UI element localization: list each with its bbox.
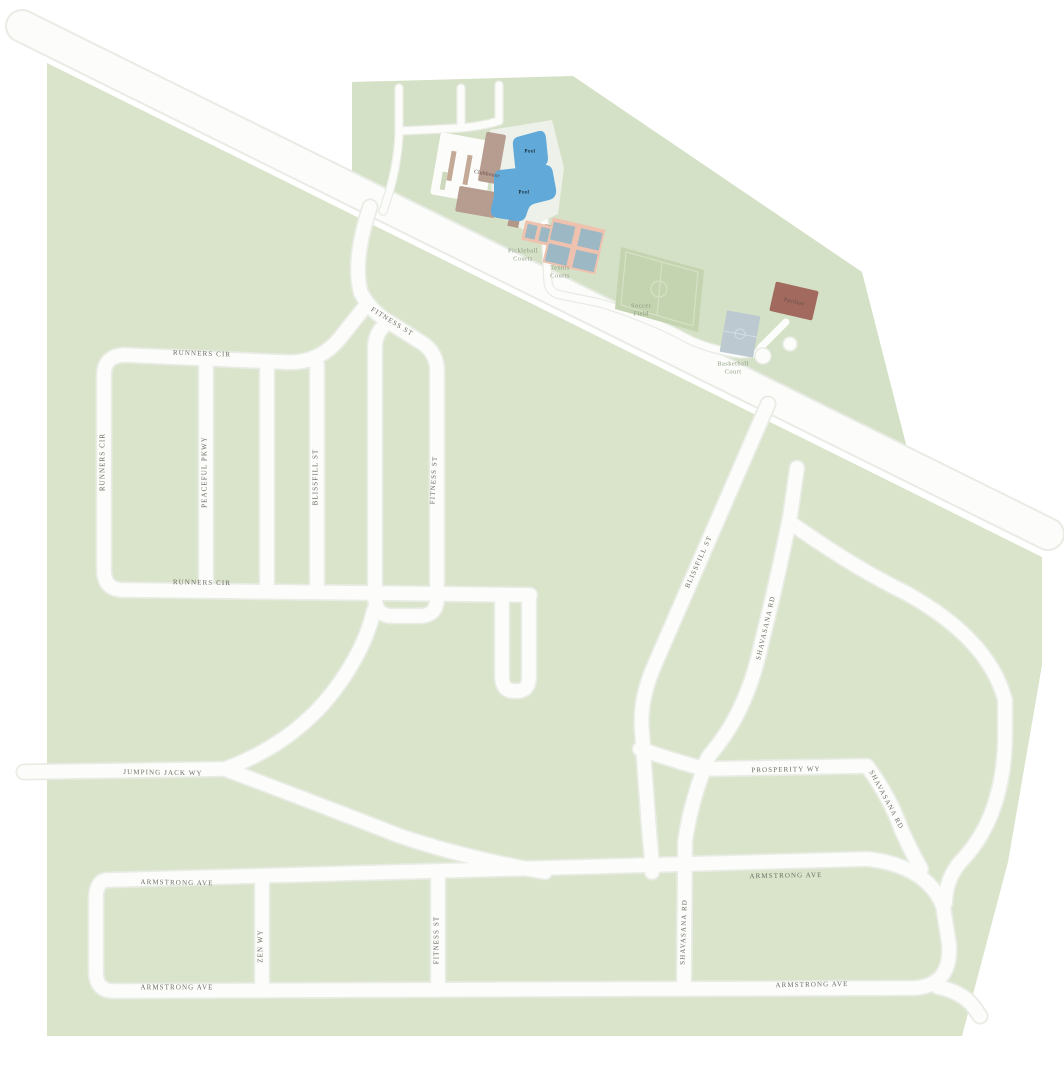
label-armstrong-ave-botleft: ARMSTRONG AVE <box>140 984 213 992</box>
pickleball-label-line2: Courts <box>513 255 533 262</box>
label-jumping-jack-wy: JUMPING JACK WY <box>123 768 203 777</box>
tennis-label-line2: Courts <box>550 272 570 279</box>
cul-de-sac-1 <box>755 348 771 364</box>
label-zen-wy: ZEN WY <box>257 929 265 963</box>
label-fitness-st-bottom: FITNESS ST <box>433 916 441 965</box>
label-armstrong-ave-topright: ARMSTRONG AVE <box>749 871 822 880</box>
main-pool-label: Pool <box>518 189 529 195</box>
tennis-label-line1: Tennis <box>550 264 570 271</box>
site-map: Pool Pool Clubhouse <box>0 0 1064 1082</box>
label-runners-cir-bottom: RUNNERS CIR <box>173 578 231 587</box>
cul-de-sac-2 <box>783 337 797 351</box>
lap-pool-label: Pool <box>524 148 535 154</box>
site-map-canvas: Pool Pool Clubhouse <box>0 0 1064 1082</box>
basketball-label-line2: Court <box>725 368 742 375</box>
label-armstrong-ave-topleft: ARMSTRONG AVE <box>140 878 213 887</box>
pickleball-label-line1: Pickleball <box>508 247 538 254</box>
basketball-label-line1: Basketball <box>717 360 748 367</box>
soccer-label-line2: Field <box>633 310 649 317</box>
label-peaceful-pkwy: PEACEFUL PKWY <box>201 436 209 508</box>
label-armstrong-ave-botright: ARMSTRONG AVE <box>775 980 848 989</box>
label-prosperity-wy: PROSPERITY WY <box>751 765 820 774</box>
basketball-court <box>720 310 761 357</box>
soccer-label-line1: Soccer <box>631 302 652 309</box>
label-blissfill-st-left: BLISSFILL ST <box>312 449 320 506</box>
label-runners-cir-left: RUNNERS CIR <box>99 433 107 491</box>
